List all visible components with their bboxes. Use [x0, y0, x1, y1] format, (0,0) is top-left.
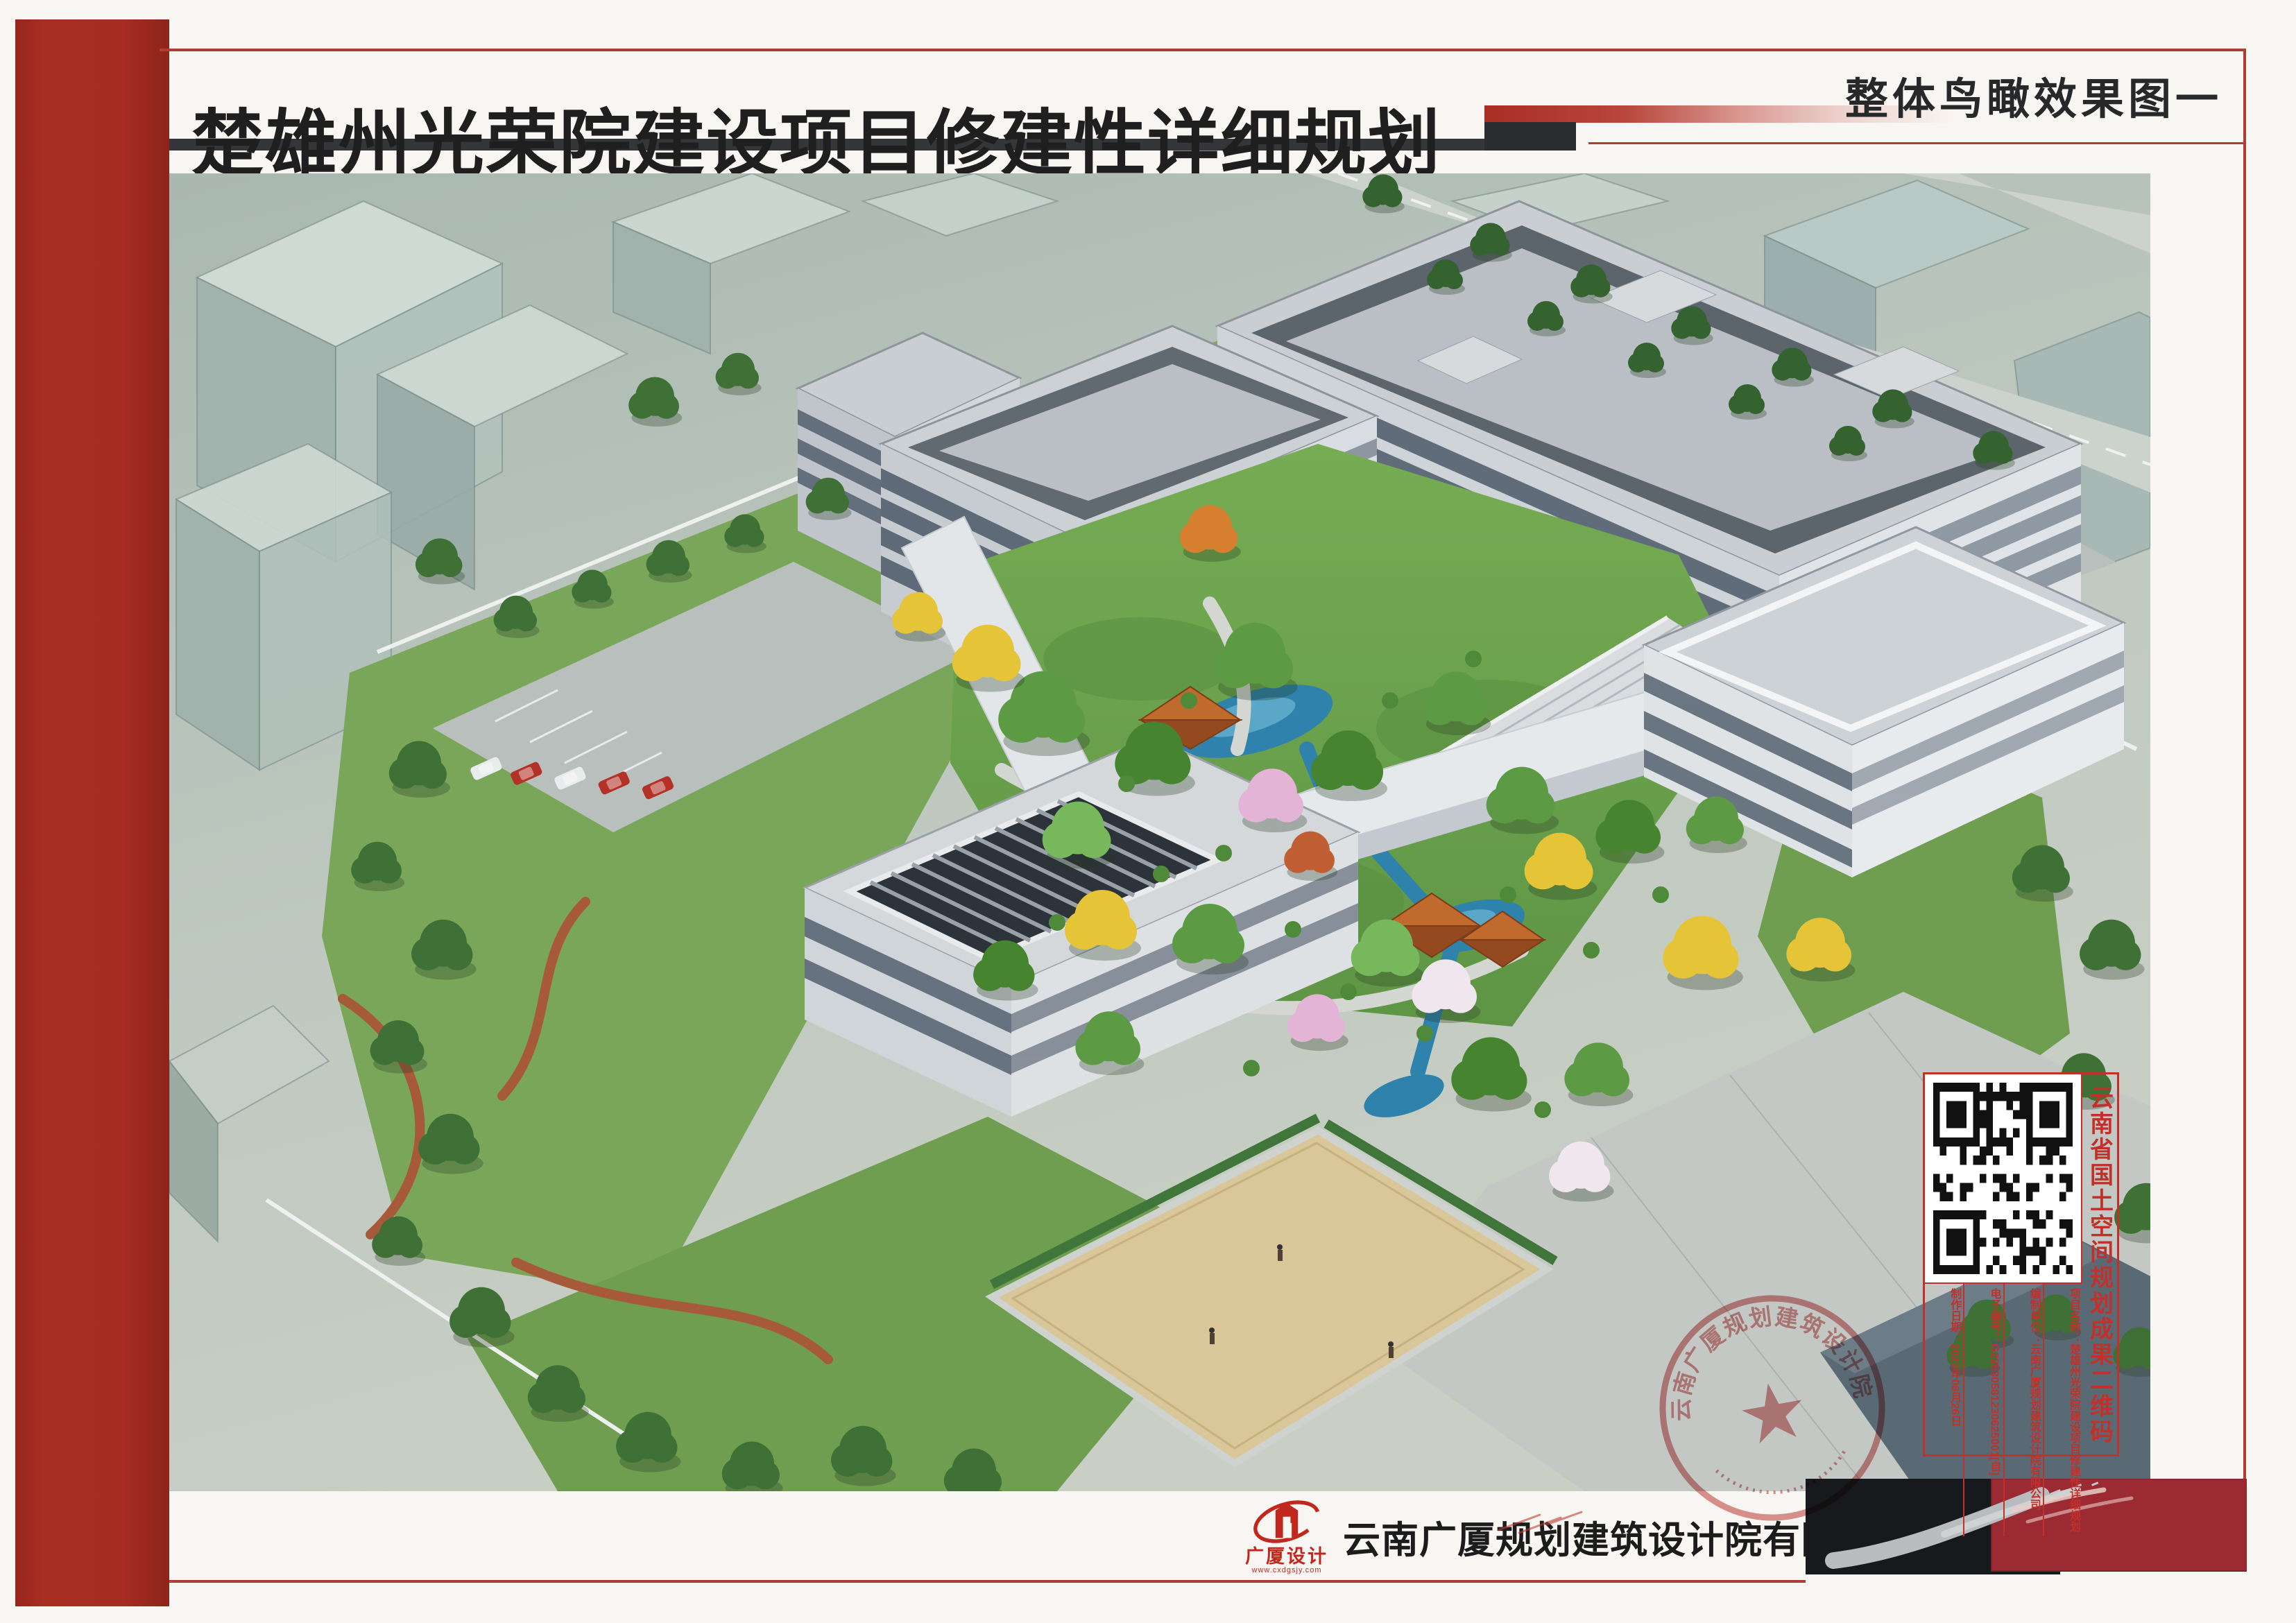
right-border-line	[2243, 49, 2246, 1480]
stamp-field-project: 项目名称：楚雄州光荣院建设项目修建性详细规划	[2044, 1284, 2082, 1536]
seal-code-marks	[1716, 1448, 1851, 1502]
stamp-field-agency: 编制单位：云南广厦规划建筑设计院有限公司	[2005, 1284, 2044, 1536]
bottom-border-line	[169, 1580, 1806, 1583]
header-red-rule	[1588, 142, 2246, 144]
design-institute-logo: 广厦设计 www.cxdgsjy.com	[1243, 1497, 1330, 1574]
stamp-field-date: 制作日期：2023年06月26日	[1925, 1284, 1964, 1536]
red-brush-flecks	[1491, 1497, 1588, 1538]
top-border-line	[160, 49, 2246, 51]
logo-text: 广厦设计	[1243, 1547, 1330, 1566]
title-underline-endblock	[1484, 122, 1576, 151]
planning-qr-stamp: 云南省国土空间规划成果二维码 制作日期：2023年06月26日 电子编号：G22…	[1923, 1072, 2119, 1457]
qr-stamp-label: 云南省国土空间规划成果二维码	[2083, 1074, 2117, 1536]
view-label: 整体鸟瞰效果图一	[1845, 64, 2222, 126]
qr-stamp-fields: 制作日期：2023年06月26日 电子编号：G22530581230625001…	[1925, 1284, 2082, 1536]
logo-url: www.cxdgsjy.com	[1243, 1566, 1330, 1574]
planning-board-page: 楚雄州光荣院建设项目修建性详细规划 整体鸟瞰效果图一	[0, 0, 2296, 1623]
qr-code	[1933, 1083, 2073, 1274]
qr-cell	[1925, 1074, 2082, 1284]
stamp-field-number: 电子编号：G22530581230625001[自]	[1964, 1284, 2004, 1536]
seal-star	[1738, 1378, 1808, 1445]
company-seal: 云南广厦规划建筑设计院有限公司	[1627, 1263, 1917, 1552]
logo-mark	[1249, 1497, 1324, 1547]
left-red-band	[15, 19, 169, 1606]
page-title: 楚雄州光荣院建设项目修建性详细规划	[191, 107, 1441, 182]
